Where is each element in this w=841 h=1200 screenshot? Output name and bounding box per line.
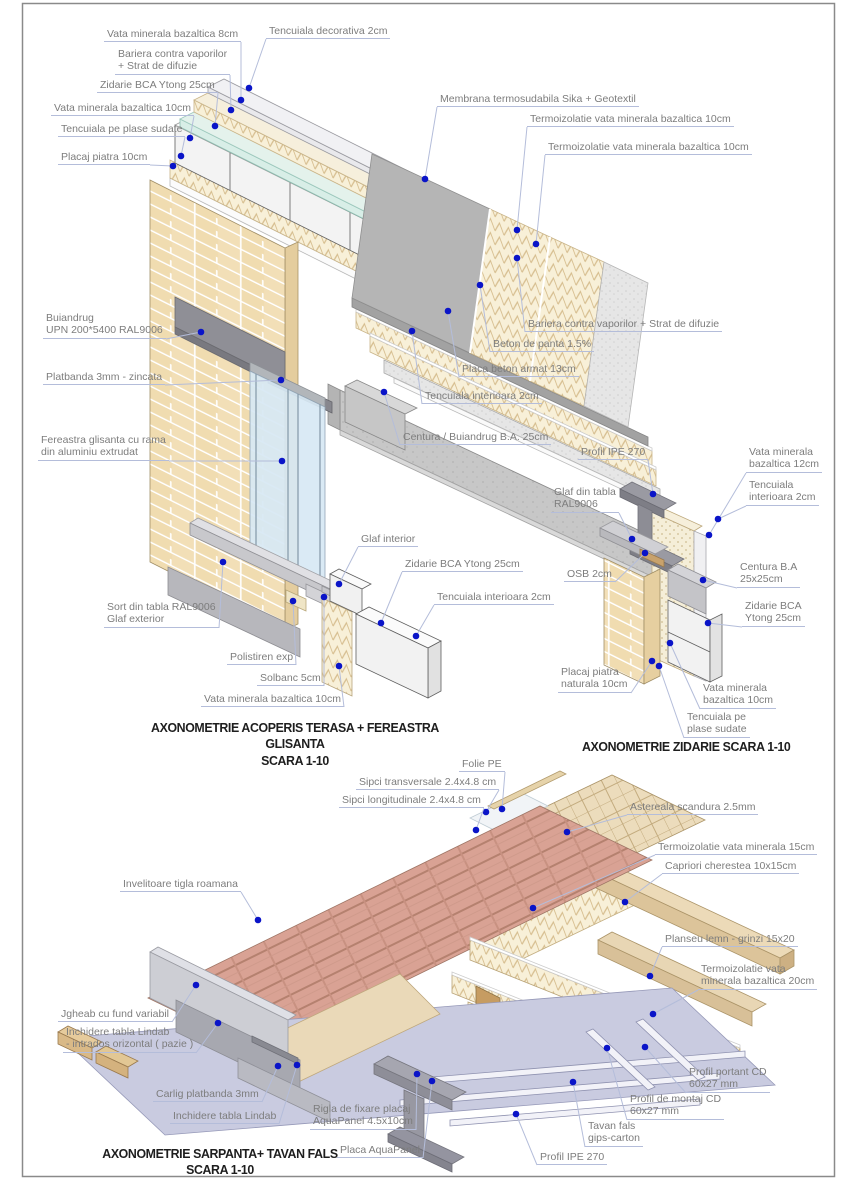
leader-line <box>709 473 746 535</box>
label-termoizolatie-15cm: Termoizolatie vata minerala 15cm <box>655 841 817 855</box>
leader-line <box>425 107 437 179</box>
reference-dot <box>212 123 219 130</box>
reference-dot <box>170 163 177 170</box>
title-detail-zidarie: AXONOMETRIE ZIDARIE SCARA 1-10 <box>582 739 790 755</box>
reference-dot <box>336 663 343 670</box>
reference-dot <box>278 377 285 384</box>
leader-line <box>381 572 402 623</box>
label-bariera-vapori-terasa: Bariera contra vaporilor + Strat de difu… <box>525 318 722 332</box>
title-detail-sarpanta: AXONOMETRIE SARPANTA+ TAVAN FALS SCARA 1… <box>92 1146 349 1179</box>
label-polistiren-exp: Polistiren exp <box>227 651 296 665</box>
reference-dot <box>530 905 537 912</box>
reference-dot <box>533 241 540 248</box>
reference-dot <box>215 1020 222 1027</box>
label-capriori-cherestea: Capriori cherestea 10x15cm <box>662 860 799 874</box>
label-buiandrug-upn: Buiandrug UPN 200*5400 RAL9006 <box>43 312 166 339</box>
label-vata-bazaltica-8cm: Vata minerala bazaltica 8cm <box>104 28 241 42</box>
label-placa-aquapanel: Placa AquaPanel <box>337 1144 423 1158</box>
leader-line <box>416 605 434 636</box>
label-jgheab-fund-variabil: Jgheab cu fund variabil <box>58 1008 172 1022</box>
reference-dot <box>220 559 227 566</box>
reference-dot <box>178 153 185 160</box>
label-folie-pe: Folie PE <box>459 758 505 772</box>
reference-dot <box>647 973 654 980</box>
reference-dot <box>378 620 385 627</box>
label-vata-bazaltica-10cm-z: Vata minerala bazaltica 10cm <box>700 682 776 709</box>
reference-dot <box>715 516 722 523</box>
label-tencuiala-interioara-3: Tencuiala interioara 2cm <box>746 479 819 506</box>
leader-line <box>516 1114 537 1165</box>
leader-line <box>659 666 684 738</box>
label-beton-de-panta: Beton de panta 1.5% <box>490 338 594 352</box>
reference-dot <box>246 85 253 92</box>
label-rigla-fixare-aquapanel: Rigla de fixare placaj AquaPanel 4.5x10c… <box>310 1103 416 1130</box>
label-osb-2cm: OSB 2cm <box>564 568 615 582</box>
reference-dot <box>187 135 194 142</box>
label-fereastra-glisanta: Fereastra glisanta cu rama din aluminiu … <box>38 434 169 461</box>
label-sipci-longitudinale: Sipci longitudinale 2.4x4.8 cm <box>339 794 484 808</box>
reference-dot <box>193 982 200 989</box>
reference-dot <box>513 1111 520 1118</box>
label-centura-buiandrug: Centura / Buiandrug B.A. 25cm <box>400 431 551 445</box>
reference-dot <box>414 1071 421 1078</box>
label-sort-tabla-glaf-exterior: Sort din tabla RAL9006 Glaf exterior <box>104 601 219 628</box>
label-solbanc: Solbanc 5cm <box>257 672 324 686</box>
label-tencuiala-interioara-2: Tencuiala interioara 2cm <box>434 591 554 605</box>
reference-dot <box>228 107 235 114</box>
label-termoizolatie-10cm-a: Termoizolatie vata minerala bazaltica 10… <box>527 113 734 127</box>
reference-dot <box>255 917 262 924</box>
leader-line <box>249 39 266 88</box>
detail-terasa-drawing <box>150 79 668 698</box>
reference-dot <box>381 389 388 396</box>
reference-dot <box>429 1078 436 1085</box>
label-platbanda-zincata: Platbanda 3mm - zincata <box>43 371 165 385</box>
label-termoizolatie-20cm: Termoizolatie vata minerala bazaltica 20… <box>698 963 817 990</box>
title-detail-sarpanta-text: AXONOMETRIE SARPANTA+ TAVAN FALS <box>92 1146 349 1162</box>
label-tencuiala-decorativa: Tencuiala decorativa 2cm <box>266 25 390 39</box>
drawing-sheet: Tencuiala decorativa 2cm Vata minerala b… <box>0 0 841 1200</box>
reference-dot <box>336 581 343 588</box>
reference-dot <box>706 532 713 539</box>
label-placa-beton-armat: Placa beton armat 13cm <box>459 363 579 377</box>
label-profil-portant-cd: Profil portant CD 60x27 mm <box>686 1066 770 1093</box>
leader-line <box>536 155 545 244</box>
label-sipci-transversale: Sipci transversale 2.4x4.8 cm <box>356 776 499 790</box>
label-termoizolatie-10cm-b: Termoizolatie vata minerala bazaltica 10… <box>545 141 752 155</box>
reference-dot <box>650 1011 657 1018</box>
title-detail-terasa-text: AXONOMETRIE ACOPERIS TERASA + FEREASTRA … <box>143 720 447 753</box>
title-detail-teras-scale: SCARA 1-10 <box>143 753 447 769</box>
label-carlig-platbanda: Carlig platbanda 3mm <box>153 1088 262 1102</box>
reference-dot <box>422 176 429 183</box>
label-placaj-piatra-10cm: Placaj piatra 10cm <box>58 151 150 165</box>
reference-dot <box>198 329 205 336</box>
label-placaj-piatra-naturala: Placaj piatra naturala 10cm <box>558 666 631 693</box>
label-profil-montaj-cd: Profil de montaj CD 60x27 mm <box>627 1093 724 1120</box>
reference-dot <box>473 827 480 834</box>
leader-line <box>517 127 527 230</box>
reference-dot <box>629 536 636 543</box>
label-vata-bazaltica-10cm-jos: Vata minerala bazaltica 10cm <box>201 693 344 707</box>
reference-dot <box>514 227 521 234</box>
reference-dot <box>642 1044 649 1051</box>
reference-dot <box>499 806 506 813</box>
reference-dot <box>656 663 663 670</box>
label-inchidere-lindab-2: Inchidere tabla Lindab <box>170 1110 279 1124</box>
label-membrana-termosudabila: Membrana termosudabila Sika + Geotextil <box>437 93 639 107</box>
reference-dot <box>238 97 245 104</box>
label-tavan-fals-gips: Tavan fals gips-carton <box>585 1120 643 1147</box>
label-tencuiala-plase-sudate: Tencuiala pe plase sudate <box>58 123 185 137</box>
reference-dot <box>570 1079 577 1086</box>
label-centura-ba-25x25: Centura B.A 25x25cm <box>737 561 800 588</box>
reference-dot <box>564 829 571 836</box>
label-vata-bazaltica-12cm: Vata minerala bazaltica 12cm <box>746 446 822 473</box>
reference-dot <box>445 308 452 315</box>
title-detail-sarpanta-scale: SCARA 1-10 <box>92 1162 349 1178</box>
reference-dot <box>650 491 657 498</box>
title-detail-terasa: AXONOMETRIE ACOPERIS TERASA + FEREASTRA … <box>143 720 447 769</box>
reference-dot <box>604 1045 611 1052</box>
reference-dot <box>649 658 656 665</box>
reference-dot <box>705 620 712 627</box>
leader-line <box>150 165 173 166</box>
reference-dot <box>514 255 521 262</box>
reference-dot <box>642 550 649 557</box>
reference-dot <box>290 598 297 605</box>
label-vata-bazaltica-10cm-top: Vata minerala bazaltica 10cm <box>51 102 194 116</box>
reference-dot <box>321 594 328 601</box>
label-profil-ipe-270-a: Profil IPE 270 <box>578 446 648 460</box>
label-invelitoare-tigla: Invelitoare tigla roamana <box>120 878 241 892</box>
reference-dot <box>667 640 674 647</box>
leader-line <box>241 892 258 920</box>
reference-dot <box>413 633 420 640</box>
reference-dot <box>622 899 629 906</box>
label-zidarie-bca-jos: Zidarie BCA Ytong 25cm <box>402 558 523 572</box>
reference-dot <box>279 458 286 465</box>
label-glaf-din-tabla: Glaf din tabla RAL9006 <box>551 486 619 513</box>
label-glaf-interior: Glaf interior <box>358 533 418 547</box>
reference-dot <box>409 328 416 335</box>
reference-dot <box>275 1063 282 1070</box>
reference-dot <box>294 1062 301 1069</box>
label-bariera-vapori-top: Bariera contra vaporilor + Strat de difu… <box>115 48 230 75</box>
label-tencuiala-interioara-1: Tencuiala interioara 2cm <box>422 390 542 404</box>
label-profil-ipe-270-b: Profil IPE 270 <box>537 1151 607 1165</box>
label-planseu-lemn-grinzi: Planseu lemn - grinzi 15x20 <box>662 933 798 947</box>
label-zidarie-bca-ytong: Zidarie BCA Ytong 25cm <box>742 600 805 627</box>
label-astereala-scandura: Astereala scandura 2.5mm <box>627 801 758 815</box>
reference-dot <box>477 282 484 289</box>
label-zidarie-bca-top: Zidarie BCA Ytong 25cm <box>97 79 218 93</box>
reference-dot <box>700 577 707 584</box>
label-inchidere-lindab-pazie: Inchidere tabla Lindab - intrados orizon… <box>63 1026 196 1053</box>
label-tencuiala-plase-sudate-2: Tencuiala pe plase sudate <box>684 711 750 738</box>
